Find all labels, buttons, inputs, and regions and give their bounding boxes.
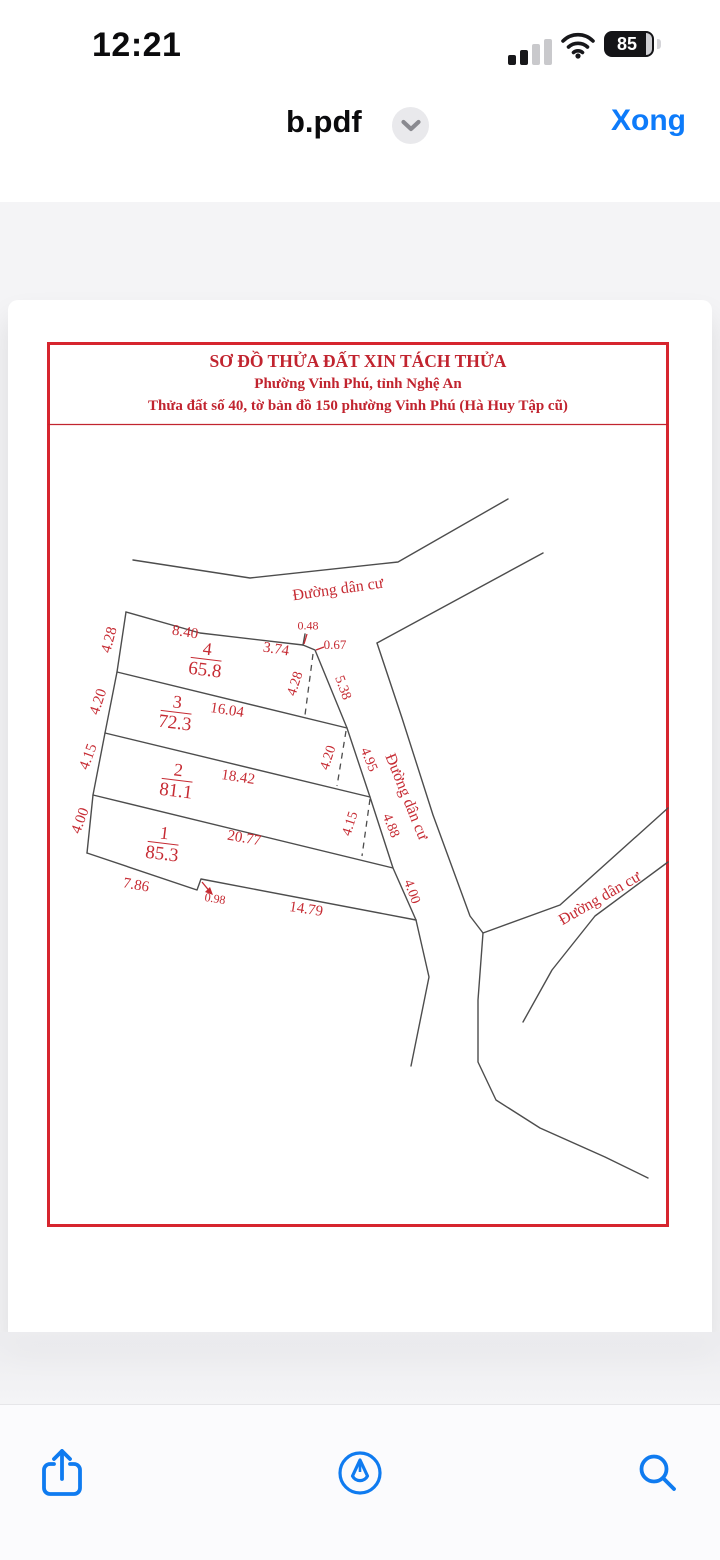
status-bar: 12:21 85 — [0, 0, 720, 90]
battery-percent: 85 — [617, 34, 637, 55]
title-menu-button[interactable] — [392, 107, 429, 144]
markup-button[interactable] — [328, 1441, 392, 1505]
cellular-signal-icon — [508, 32, 554, 66]
clock-text: 12:21 — [92, 26, 181, 65]
file-title: b.pdf — [286, 104, 362, 140]
share-icon — [39, 1446, 85, 1500]
done-button[interactable]: Xong — [611, 104, 686, 138]
doc-title-line1: SƠ ĐỒ THỬA ĐẤT XIN TÁCH THỬA — [48, 349, 668, 373]
bottom-toolbar — [0, 1404, 720, 1560]
markup-icon — [336, 1449, 384, 1497]
chevron-down-icon — [401, 119, 421, 133]
pdf-page — [8, 300, 712, 1332]
nav-bar: b.pdf Xong — [0, 90, 720, 202]
document-title-block: SƠ ĐỒ THỬA ĐẤT XIN TÁCH THỬA Phường Vinh… — [48, 349, 668, 417]
search-icon — [635, 1450, 681, 1496]
share-button[interactable] — [30, 1441, 94, 1505]
wifi-icon — [560, 31, 596, 59]
doc-title-line3: Thửa đất số 40, tờ bản đồ 150 phường Vin… — [48, 395, 668, 417]
ios-pdf-viewer: 12:21 85 b.pdf Xong — [0, 0, 720, 1560]
search-button[interactable] — [626, 1441, 690, 1505]
battery-empty-segment — [646, 33, 652, 55]
page-shadow — [0, 1332, 720, 1404]
battery-nub — [657, 39, 661, 49]
doc-title-line2: Phường Vinh Phú, tỉnh Nghệ An — [48, 373, 668, 395]
